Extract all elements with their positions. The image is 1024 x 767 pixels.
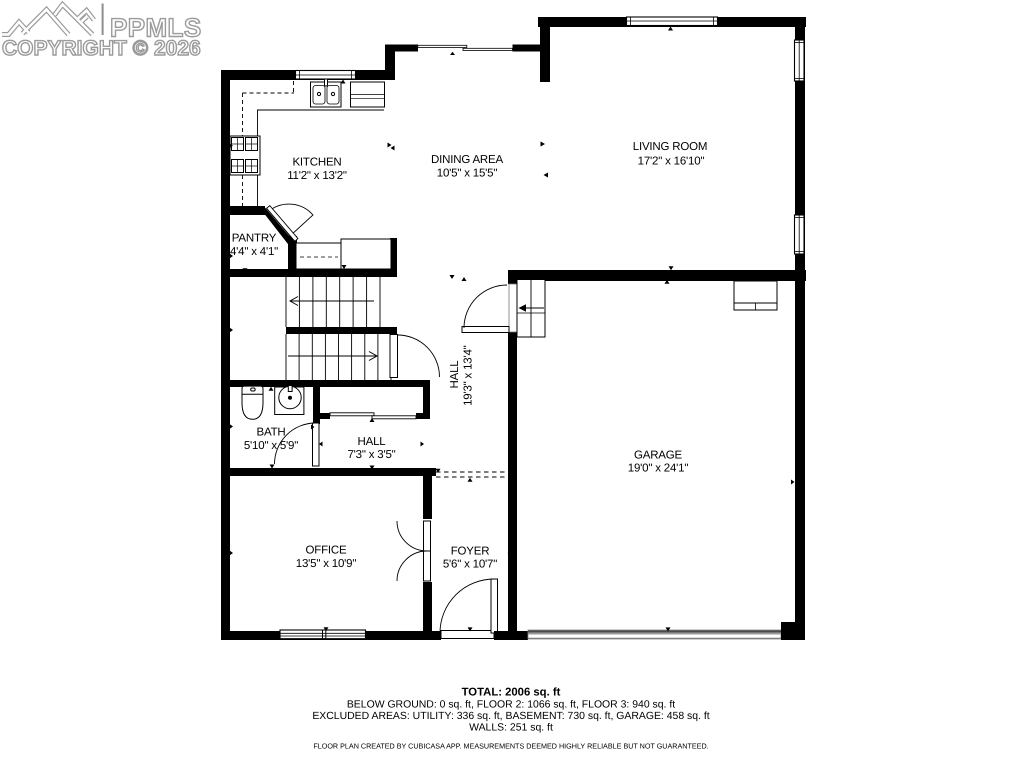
svg-text:KITCHEN: KITCHEN: [292, 157, 341, 169]
svg-text:BELOW GROUND: 0 sq. ft, FLOOR: BELOW GROUND: 0 sq. ft, FLOOR 2: 1066 sq…: [347, 700, 675, 711]
svg-text:FOYER: FOYER: [451, 546, 490, 558]
svg-text:5'6" x 10'7": 5'6" x 10'7": [443, 559, 497, 571]
svg-text:GARAGE: GARAGE: [634, 450, 683, 462]
svg-text:11'2" x 13'2": 11'2" x 13'2": [287, 170, 347, 182]
svg-text:BATH: BATH: [256, 427, 285, 439]
svg-text:4'4" x 4'1": 4'4" x 4'1": [230, 246, 278, 258]
svg-text:HALL: HALL: [449, 360, 461, 389]
svg-text:19'0" x 24'1": 19'0" x 24'1": [628, 463, 689, 475]
svg-text:13'5" x 10'9": 13'5" x 10'9": [296, 558, 357, 570]
svg-text:7'3" x 3'5": 7'3" x 3'5": [347, 449, 395, 461]
svg-text:FLOOR PLAN CREATED BY CUBICASA: FLOOR PLAN CREATED BY CUBICASA APP. MEAS…: [313, 742, 708, 751]
svg-text:TOTAL: 2006 sq. ft: TOTAL: 2006 sq. ft: [462, 687, 561, 699]
svg-text:DINING AREA: DINING AREA: [431, 154, 503, 166]
svg-text:COPYRIGHT © 2026: COPYRIGHT © 2026: [2, 37, 201, 60]
svg-text:EXCLUDED AREAS: UTILITY: 336 s: EXCLUDED AREAS: UTILITY: 336 sq. ft, BAS…: [312, 711, 709, 722]
svg-text:19'3" x 13'4": 19'3" x 13'4": [462, 345, 474, 406]
svg-text:17'2" x 16'10": 17'2" x 16'10": [638, 156, 705, 168]
svg-text:OFFICE: OFFICE: [306, 545, 347, 557]
svg-text:PANTRY: PANTRY: [232, 233, 277, 245]
svg-text:WALLS: 251 sq. ft: WALLS: 251 sq. ft: [469, 723, 553, 734]
svg-text:5'10" x 5'9": 5'10" x 5'9": [244, 440, 298, 452]
svg-text:LIVING ROOM: LIVING ROOM: [633, 141, 707, 153]
svg-text:HALL: HALL: [358, 436, 387, 448]
svg-text:10'5" x 15'5": 10'5" x 15'5": [437, 168, 498, 180]
